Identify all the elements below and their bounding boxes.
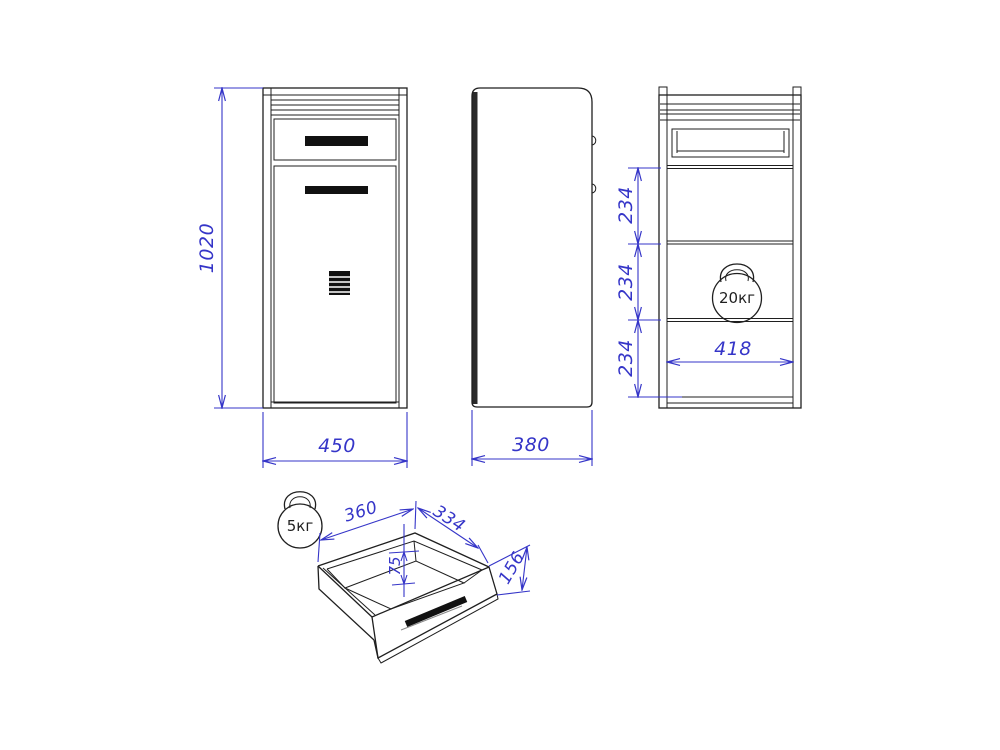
- weight-20kg-icon: 20кг: [713, 264, 762, 323]
- weight-20kg-label: 20кг: [719, 289, 755, 307]
- dim-drawer-height: 156: [495, 548, 529, 587]
- weight-5kg-icon: 5кг: [278, 492, 322, 548]
- dim-back-inner-width: 418: [714, 338, 752, 360]
- side-view: [472, 88, 596, 407]
- dim-back-section-1: 234: [615, 186, 637, 224]
- front-vent-grille: [329, 271, 350, 295]
- front-view: [263, 88, 407, 408]
- back-dimensions: 234 234 234 418: [615, 168, 793, 397]
- weight-5kg-label: 5кг: [287, 517, 314, 535]
- drawer-dimensions: 360 334 75 156: [318, 497, 530, 597]
- side-dimensions: 380: [472, 410, 592, 466]
- dim-drawer-inner-depth: 75: [386, 556, 404, 575]
- back-slot-opening: [672, 129, 789, 157]
- dim-side-depth: 380: [512, 434, 550, 456]
- dim-back-section-2: 234: [615, 263, 637, 301]
- front-dimensions: 1020 450: [196, 88, 407, 468]
- dim-drawer-depth: 334: [429, 501, 468, 536]
- front-door-handle: [305, 186, 368, 194]
- drawing-svg: 1020 450 380: [0, 0, 1000, 750]
- front-drawer-handle: [305, 136, 368, 146]
- dim-front-width: 450: [318, 435, 356, 457]
- dim-front-height: 1020: [196, 223, 218, 273]
- technical-drawing-canvas: 1020 450 380: [0, 0, 1000, 750]
- drawer-handle: [406, 599, 466, 624]
- dim-back-section-3: 234: [615, 339, 637, 377]
